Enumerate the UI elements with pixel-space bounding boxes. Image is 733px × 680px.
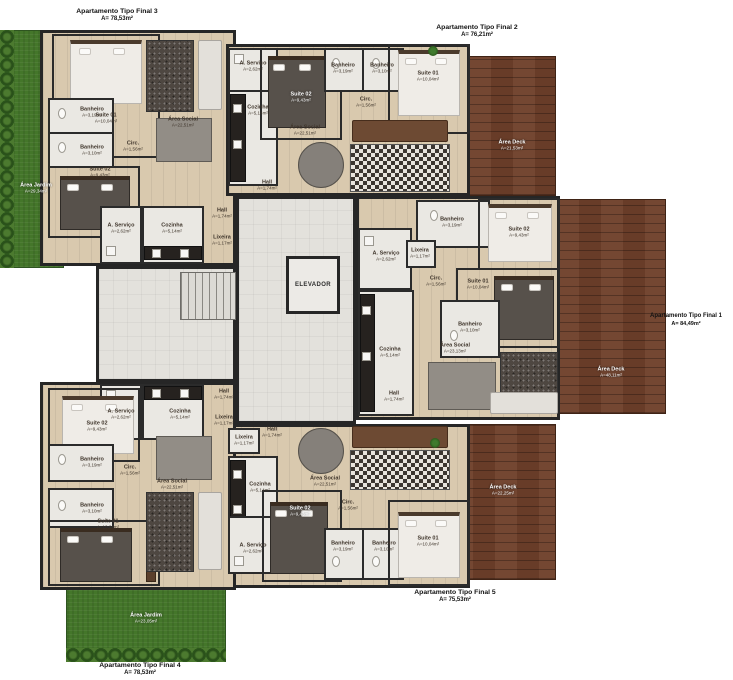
bed — [70, 40, 142, 104]
caption-final1: Apartamento Tipo Final 1A= 84,49m² — [640, 313, 732, 327]
rug — [146, 492, 194, 572]
toilet — [58, 454, 66, 465]
label-cozinha-final2: CozinhaA=5,14m² — [247, 104, 268, 115]
label-suite01-final5: Suíte 01A=10,04m² — [417, 535, 439, 546]
label-social-final4: Área SocialA=22,51m² — [157, 478, 187, 489]
label-suite01-final4: Suíte 01A=10,04m² — [97, 518, 119, 529]
label-banheiro-b-final5: BanheiroA=3,10m² — [372, 540, 396, 551]
caption-final3: Apartamento Tipo Final 3A= 78,53m² — [37, 8, 197, 24]
bed — [398, 50, 460, 116]
pillow — [79, 48, 91, 55]
sink — [233, 104, 242, 113]
label-aservico-final1: A. ServiçoA=2,62m² — [373, 250, 400, 261]
label-cozinha-final1: CozinhaA=5,14m² — [379, 346, 400, 357]
deck-top-label: Área Deck A=21,53m² — [499, 139, 526, 150]
label-circ-final5: Circ.A=1,56m² — [338, 499, 358, 510]
rug — [146, 40, 194, 112]
label-suite01-final2: Suíte 01A=10,04m² — [417, 70, 439, 81]
sofa — [352, 120, 448, 142]
sink — [180, 249, 189, 258]
label-social-final2: Área SocialA=22,51m² — [290, 124, 320, 135]
dining-table-round — [298, 428, 344, 474]
dining-table-round — [298, 142, 344, 188]
stove — [362, 352, 371, 361]
sofa — [198, 40, 222, 110]
room-banheiro-a-final5 — [324, 528, 364, 580]
label-social-final5: Área SocialA=22,51m² — [310, 475, 340, 486]
dining-table — [428, 362, 496, 410]
washer — [364, 236, 374, 246]
shrub-row-left — [0, 30, 14, 268]
deck-right — [556, 199, 666, 414]
label-cozinha-final5: CozinhaA=5,14m² — [249, 481, 270, 492]
label-suite02-final3: Suíte 02A=9,43m² — [89, 166, 110, 177]
stairs — [180, 272, 236, 320]
sofa — [490, 392, 558, 414]
label-suite02-final4: Suíte 02A=9,43m² — [86, 420, 107, 431]
stove — [233, 505, 242, 514]
label-banheiro-a-final3b: BanheiroA=3,19m² — [80, 106, 104, 117]
label-circ-final4: Circ.A=1,56m² — [120, 464, 140, 475]
label-hall-final4: HallA=1,74m² — [214, 388, 234, 399]
pillow — [501, 284, 513, 291]
toilet — [332, 556, 340, 567]
label-banheiro-b-final1: BanheiroA=3,10m² — [458, 321, 482, 332]
dining-table — [156, 436, 212, 480]
label-cozinha-final4: CozinhaA=5,14m² — [169, 408, 190, 419]
stove — [152, 389, 161, 398]
label-suite02-final5: Suíte 02A=9,43m² — [289, 505, 310, 516]
floor-plan: Área Jardim A=29,34m² Área Jardim A=23,0… — [0, 0, 733, 680]
pillow — [275, 510, 287, 517]
caption-final4: Apartamento Tipo Final 4A= 78,53m² — [60, 662, 220, 678]
label-cozinha-final3: CozinhaA=5,14m² — [161, 222, 182, 233]
label-banheiro-a-final2: BanheiroA=3,19m² — [331, 62, 355, 73]
pillow — [405, 58, 417, 65]
label-banheiro-a-final1: BanheiroA=3,19m² — [440, 216, 464, 227]
label-lixeira-final1: LixeiraA=1,17m² — [410, 247, 430, 258]
stove — [233, 140, 242, 149]
plant — [430, 438, 440, 448]
bed — [60, 528, 132, 582]
label-aservico-final2: A. ServiçoA=2,62m² — [240, 60, 267, 71]
label-circ-final3: Circ.A=1,56m² — [123, 140, 143, 151]
label-circ-final2: Circ.A=1,56m² — [356, 96, 376, 107]
label-suite02-final2: Suíte 02A=9,43m² — [290, 91, 311, 102]
pillow — [67, 536, 79, 543]
elevator-label: ELEVADOR — [295, 282, 331, 288]
bed — [494, 276, 554, 340]
toilet — [450, 330, 458, 341]
pillow — [495, 212, 507, 219]
rug — [350, 450, 450, 490]
pillow — [529, 284, 541, 291]
toilet — [58, 500, 66, 511]
label-aservico-final3: A. ServiçoA=2,62m² — [108, 222, 135, 233]
shrub-row-bottom — [66, 648, 226, 662]
plant — [428, 46, 438, 56]
label-lixeira-final3: LixeiraA=1,17m² — [212, 234, 232, 245]
label-hall-final5: HallA=1,74m² — [262, 426, 282, 437]
label-aservico-final5: A. ServiçoA=2,62m² — [240, 542, 267, 553]
deck-top-right — [468, 56, 556, 196]
label-suite01-final1: Suíte 01A=10,04m² — [467, 278, 489, 289]
label-hall-final1: HallA=1,74m² — [384, 390, 404, 401]
sofa — [198, 492, 222, 570]
label-social-final1: Área SocialA=23,13m² — [440, 342, 470, 353]
sink — [362, 306, 371, 315]
sink — [180, 389, 189, 398]
pillow — [113, 48, 125, 55]
rug — [350, 144, 450, 192]
label-social-final3: Área SocialA=22,51m² — [168, 116, 198, 127]
caption-final2: Apartamento Tipo Final 2A= 76,21m² — [397, 24, 557, 40]
label-circ-final1: Circ.A=1,56m² — [426, 275, 446, 286]
caption-final5: Apartamento Tipo Final 5A= 75,53m² — [375, 589, 535, 605]
label-hall-final3: HallA=1,74m² — [212, 207, 232, 218]
elevator-room: ELEVADOR — [286, 256, 340, 314]
toilet — [58, 108, 66, 119]
label-banheiro-a-final4: BanheiroA=3,19m² — [80, 456, 104, 467]
pillow — [405, 520, 417, 527]
garden-bottom-label: Área Jardim A=23,05m² — [130, 612, 162, 623]
label-hall-final2: HallA=1,74m² — [257, 179, 277, 190]
toilet — [58, 142, 66, 153]
label-banheiro-a-final5: BanheiroA=3,19m² — [331, 540, 355, 551]
pillow — [527, 212, 539, 219]
garden-left-label: Área Jardim A=29,34m² — [20, 182, 52, 193]
sink — [233, 470, 242, 479]
toilet — [430, 210, 438, 221]
label-aservico-final4: A. ServiçoA=2,62m² — [108, 408, 135, 419]
pillow — [435, 58, 447, 65]
stove — [152, 249, 161, 258]
label-suite02-final1: Suíte 02A=9,43m² — [508, 226, 529, 237]
rug — [500, 352, 558, 394]
pillow — [71, 404, 83, 411]
label-lixeira-final4: LixeiraA=1,17m² — [214, 414, 234, 425]
pillow — [299, 64, 311, 71]
label-banheiro-b-final3: BanheiroA=3,10m² — [80, 144, 104, 155]
deck-right-label: Área Deck A=48,11m² — [598, 366, 625, 377]
pillow — [101, 184, 113, 191]
pillow — [435, 520, 447, 527]
pillow — [101, 536, 113, 543]
pillow — [67, 184, 79, 191]
label-banheiro-b-final4: BanheiroA=3,10m² — [80, 502, 104, 513]
washer — [106, 246, 116, 256]
washer — [234, 556, 244, 566]
deck-bottom-label: Área Deck A=22,25m² — [490, 484, 517, 495]
toilet — [372, 556, 380, 567]
label-lixeira-final5: LixeiraA=1,17m² — [234, 434, 254, 445]
pillow — [273, 64, 285, 71]
label-banheiro-b-final2: BanheiroA=3,10m² — [370, 62, 394, 73]
